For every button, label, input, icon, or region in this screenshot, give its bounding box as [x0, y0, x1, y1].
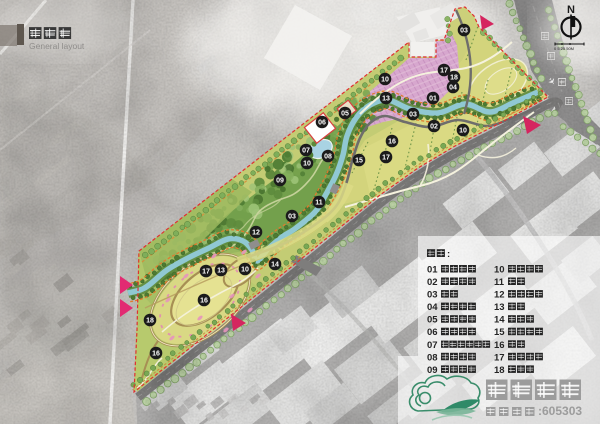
svg-text:03: 03: [288, 213, 296, 220]
svg-text:04: 04: [449, 84, 457, 91]
svg-text:10: 10: [303, 160, 311, 167]
svg-text:05: 05: [341, 110, 349, 117]
svg-text:11: 11: [494, 277, 505, 288]
svg-text:03: 03: [409, 111, 417, 118]
svg-text:17: 17: [202, 268, 210, 275]
svg-text:09: 09: [276, 177, 284, 184]
svg-text:12: 12: [252, 229, 260, 236]
svg-text:06: 06: [427, 327, 438, 338]
svg-text:16: 16: [200, 297, 208, 304]
svg-text:01: 01: [429, 95, 437, 102]
svg-text:12: 12: [494, 290, 505, 301]
svg-text:02: 02: [430, 123, 438, 130]
svg-text:06: 06: [318, 119, 326, 126]
svg-text:01: 01: [427, 265, 438, 276]
svg-text:18: 18: [450, 74, 458, 81]
svg-text::605303: :605303: [538, 404, 582, 418]
svg-text:08: 08: [427, 352, 438, 363]
svg-text:18: 18: [146, 317, 154, 324]
svg-text:10: 10: [459, 127, 467, 134]
svg-text:General layout: General layout: [29, 41, 85, 51]
svg-text:03: 03: [460, 27, 468, 34]
svg-text:16: 16: [494, 340, 505, 351]
svg-text:16: 16: [388, 138, 396, 145]
svg-text:18: 18: [494, 365, 505, 376]
svg-text:14: 14: [271, 261, 279, 268]
svg-text:10: 10: [381, 76, 389, 83]
svg-text:13: 13: [217, 267, 225, 274]
svg-text:17: 17: [440, 67, 448, 74]
svg-text:16: 16: [152, 350, 160, 357]
svg-text:0 5 25 50M: 0 5 25 50M: [554, 46, 574, 51]
svg-text:15: 15: [494, 327, 505, 338]
svg-text:02: 02: [427, 277, 438, 288]
svg-text:15: 15: [355, 157, 363, 164]
svg-text:09: 09: [427, 365, 438, 376]
svg-text:13: 13: [382, 95, 390, 102]
svg-text:13: 13: [494, 302, 505, 313]
svg-text:07: 07: [302, 147, 310, 154]
svg-text:04: 04: [427, 302, 438, 313]
svg-text:N: N: [567, 4, 575, 16]
svg-text:03: 03: [427, 290, 438, 301]
svg-text:17: 17: [382, 154, 390, 161]
svg-text:10: 10: [494, 265, 505, 276]
svg-text:05: 05: [427, 315, 438, 326]
svg-text:11: 11: [315, 199, 323, 206]
svg-text:17: 17: [494, 352, 505, 363]
svg-text:08: 08: [324, 153, 332, 160]
svg-text:10: 10: [241, 266, 249, 273]
svg-text:14: 14: [494, 315, 505, 326]
svg-text:07: 07: [427, 340, 438, 351]
svg-text::: :: [447, 249, 450, 260]
